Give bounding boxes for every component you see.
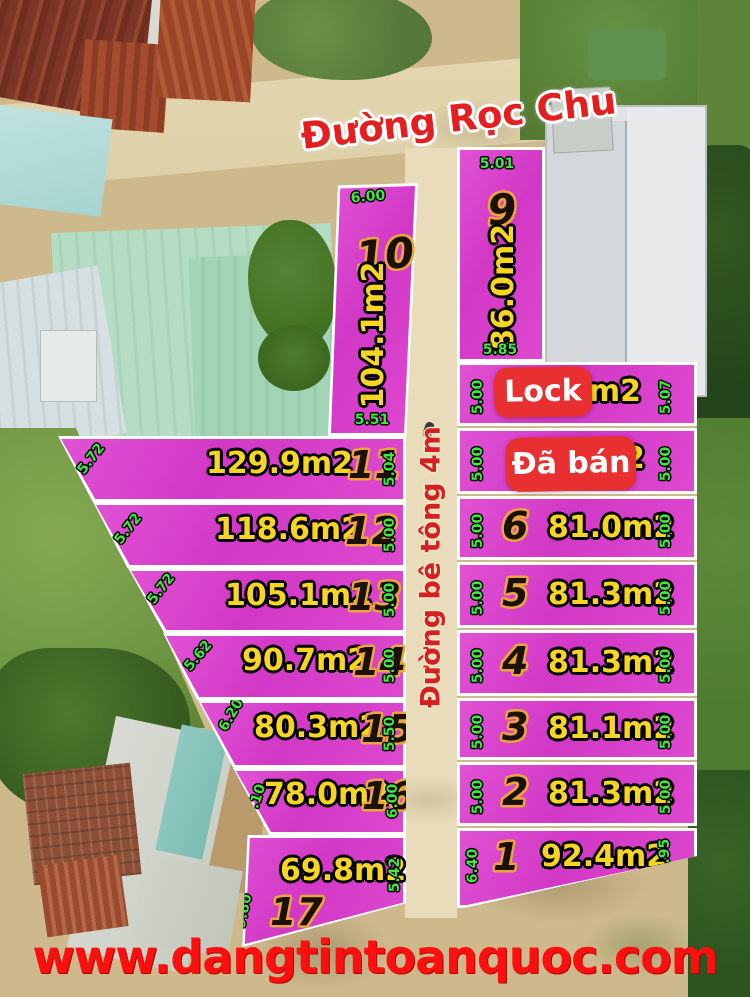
plot-2-area: 81.3m2 (548, 779, 674, 809)
plot-9-dim-top: 5.01 (480, 157, 515, 171)
plot-8-dim-left: 5.00 (471, 380, 485, 415)
plot-10: 6.00 10 104.1m2 5.51 (328, 183, 418, 436)
aerial-banana-trees-2 (258, 325, 330, 391)
plot-7: 5.00 2 Đã bán 5.00 (457, 428, 697, 494)
aerial-green-patch-top (588, 30, 666, 80)
land-plot-map: 5.01 9 86.0m2 5.85 5.00 7m2 Lock 5.07 5.… (0, 0, 750, 997)
plot-5-number: 5 (502, 574, 528, 612)
plot-14-area: 90.7m2 (242, 646, 368, 676)
plot-8-dim-right: 5.07 (659, 380, 673, 415)
plot-6: 5.00 6 81.0m2 5.00 (457, 496, 697, 560)
plot-4-dim-left: 5.00 (471, 649, 485, 684)
plot-1-dim-left: 6.40 (466, 849, 480, 884)
plot-10-area: 104.1m2 (359, 261, 389, 408)
plot-12-dim-right: 5.00 (383, 518, 397, 553)
plot-8: 5.00 7m2 Lock 5.07 (457, 362, 697, 426)
plot-17-number: 17 (270, 893, 323, 931)
plot-15: 6.20 80.3m2 15 5.50 (198, 700, 406, 768)
plot-6-dim-left: 5.00 (471, 514, 485, 549)
plot-13: 5.72 105.1m2 13 5.00 (128, 568, 406, 633)
plot-9-dim-bottom: 5.85 (483, 343, 518, 357)
plot-7-dim-left: 5.00 (471, 447, 485, 482)
plot-15-dim-right: 5.50 (383, 717, 397, 752)
aerial-building-right-wing (627, 107, 705, 395)
plot-12-area: 118.6m2 (215, 515, 362, 545)
aerial-roof-cyan (0, 105, 113, 216)
plot-4: 5.00 4 81.3m2 5.00 (457, 630, 697, 696)
plot-7-dim-right: 5.00 (659, 447, 673, 482)
plot-5-area: 81.3m2 (548, 580, 674, 610)
plot-12: 5.72 118.6m2 12 5.00 (93, 502, 406, 568)
plot-1-area: 92.4m2 (541, 842, 667, 872)
plot-1-number: 1 (493, 838, 519, 876)
sold-badge-label: Đã bán (511, 448, 630, 480)
aerial-building-left-wing (547, 121, 627, 395)
aerial-roof-rust-3 (155, 0, 256, 102)
plot-5-dim-right: 5.00 (659, 581, 673, 616)
plot-5-dim-left: 5.00 (471, 581, 485, 616)
plot-11-area: 129.9m2 (206, 449, 353, 479)
plot-13-dim-right: 5.00 (383, 583, 397, 618)
plot-11: 5.72 129.9m2 11 5.04 (58, 436, 406, 502)
plot-3-number: 3 (502, 708, 528, 746)
plot-2-dim-left: 5.00 (471, 780, 485, 815)
plot-2: 5.00 2 81.3m2 5.00 (457, 762, 697, 826)
plot-3-area: 81.1m2 (548, 714, 674, 744)
plot-2-number: 2 (502, 773, 528, 811)
plot-4-number: 4 (502, 642, 528, 680)
aerial-shed-white (40, 330, 97, 402)
plot-14-dim-right: 5.00 (383, 649, 397, 684)
plot-3: 5.00 3 81.1m2 5.00 (457, 698, 697, 760)
plot-9-area: 86.0m2 (489, 224, 519, 350)
plot-17-dim-right: 5.42 (388, 858, 402, 893)
plot-3-dim-right: 5.00 (659, 715, 673, 750)
watermark-url: www.dangtintoanquoc.com (0, 934, 750, 980)
concrete-road-label: Đường bê tông 4m (418, 426, 445, 708)
plot-4-area: 81.3m2 (548, 648, 674, 678)
plot-10-dim-bottom: 5.51 (355, 413, 390, 427)
aerial-bushes-top (252, 0, 432, 80)
plot-3-dim-left: 5.00 (471, 715, 485, 750)
aerial-grass-right-mid (697, 418, 750, 783)
lock-badge-label: Lock (504, 376, 582, 407)
plot-6-dim-right: 5.00 (659, 514, 673, 549)
plot-6-area: 81.0m2 (548, 513, 674, 543)
plot-10-dim-top: 6.00 (350, 189, 386, 206)
plot-5: 5.00 5 81.3m2 5.00 (457, 562, 697, 628)
plot-2-dim-right: 5.00 (659, 780, 673, 815)
plot-7-sold-badge: Đã bán (506, 436, 637, 492)
plot-1-dim-right: 4.95 (658, 839, 672, 874)
plot-14: 5.62 90.7m2 14 5.00 (163, 633, 406, 700)
plot-11-dim-right: 5.04 (383, 452, 397, 487)
plot-9: 5.01 9 86.0m2 5.85 (457, 147, 545, 362)
plot-6-number: 6 (502, 507, 528, 545)
aerial-roof-corrugated (37, 855, 128, 938)
plot-1: 6.40 1 92.4m2 4.95 (457, 828, 697, 908)
plot-8-lock-badge: Lock (494, 366, 593, 418)
plot-4-dim-right: 5.00 (659, 649, 673, 684)
plot-16-dim-right: 6.00 (386, 784, 400, 819)
